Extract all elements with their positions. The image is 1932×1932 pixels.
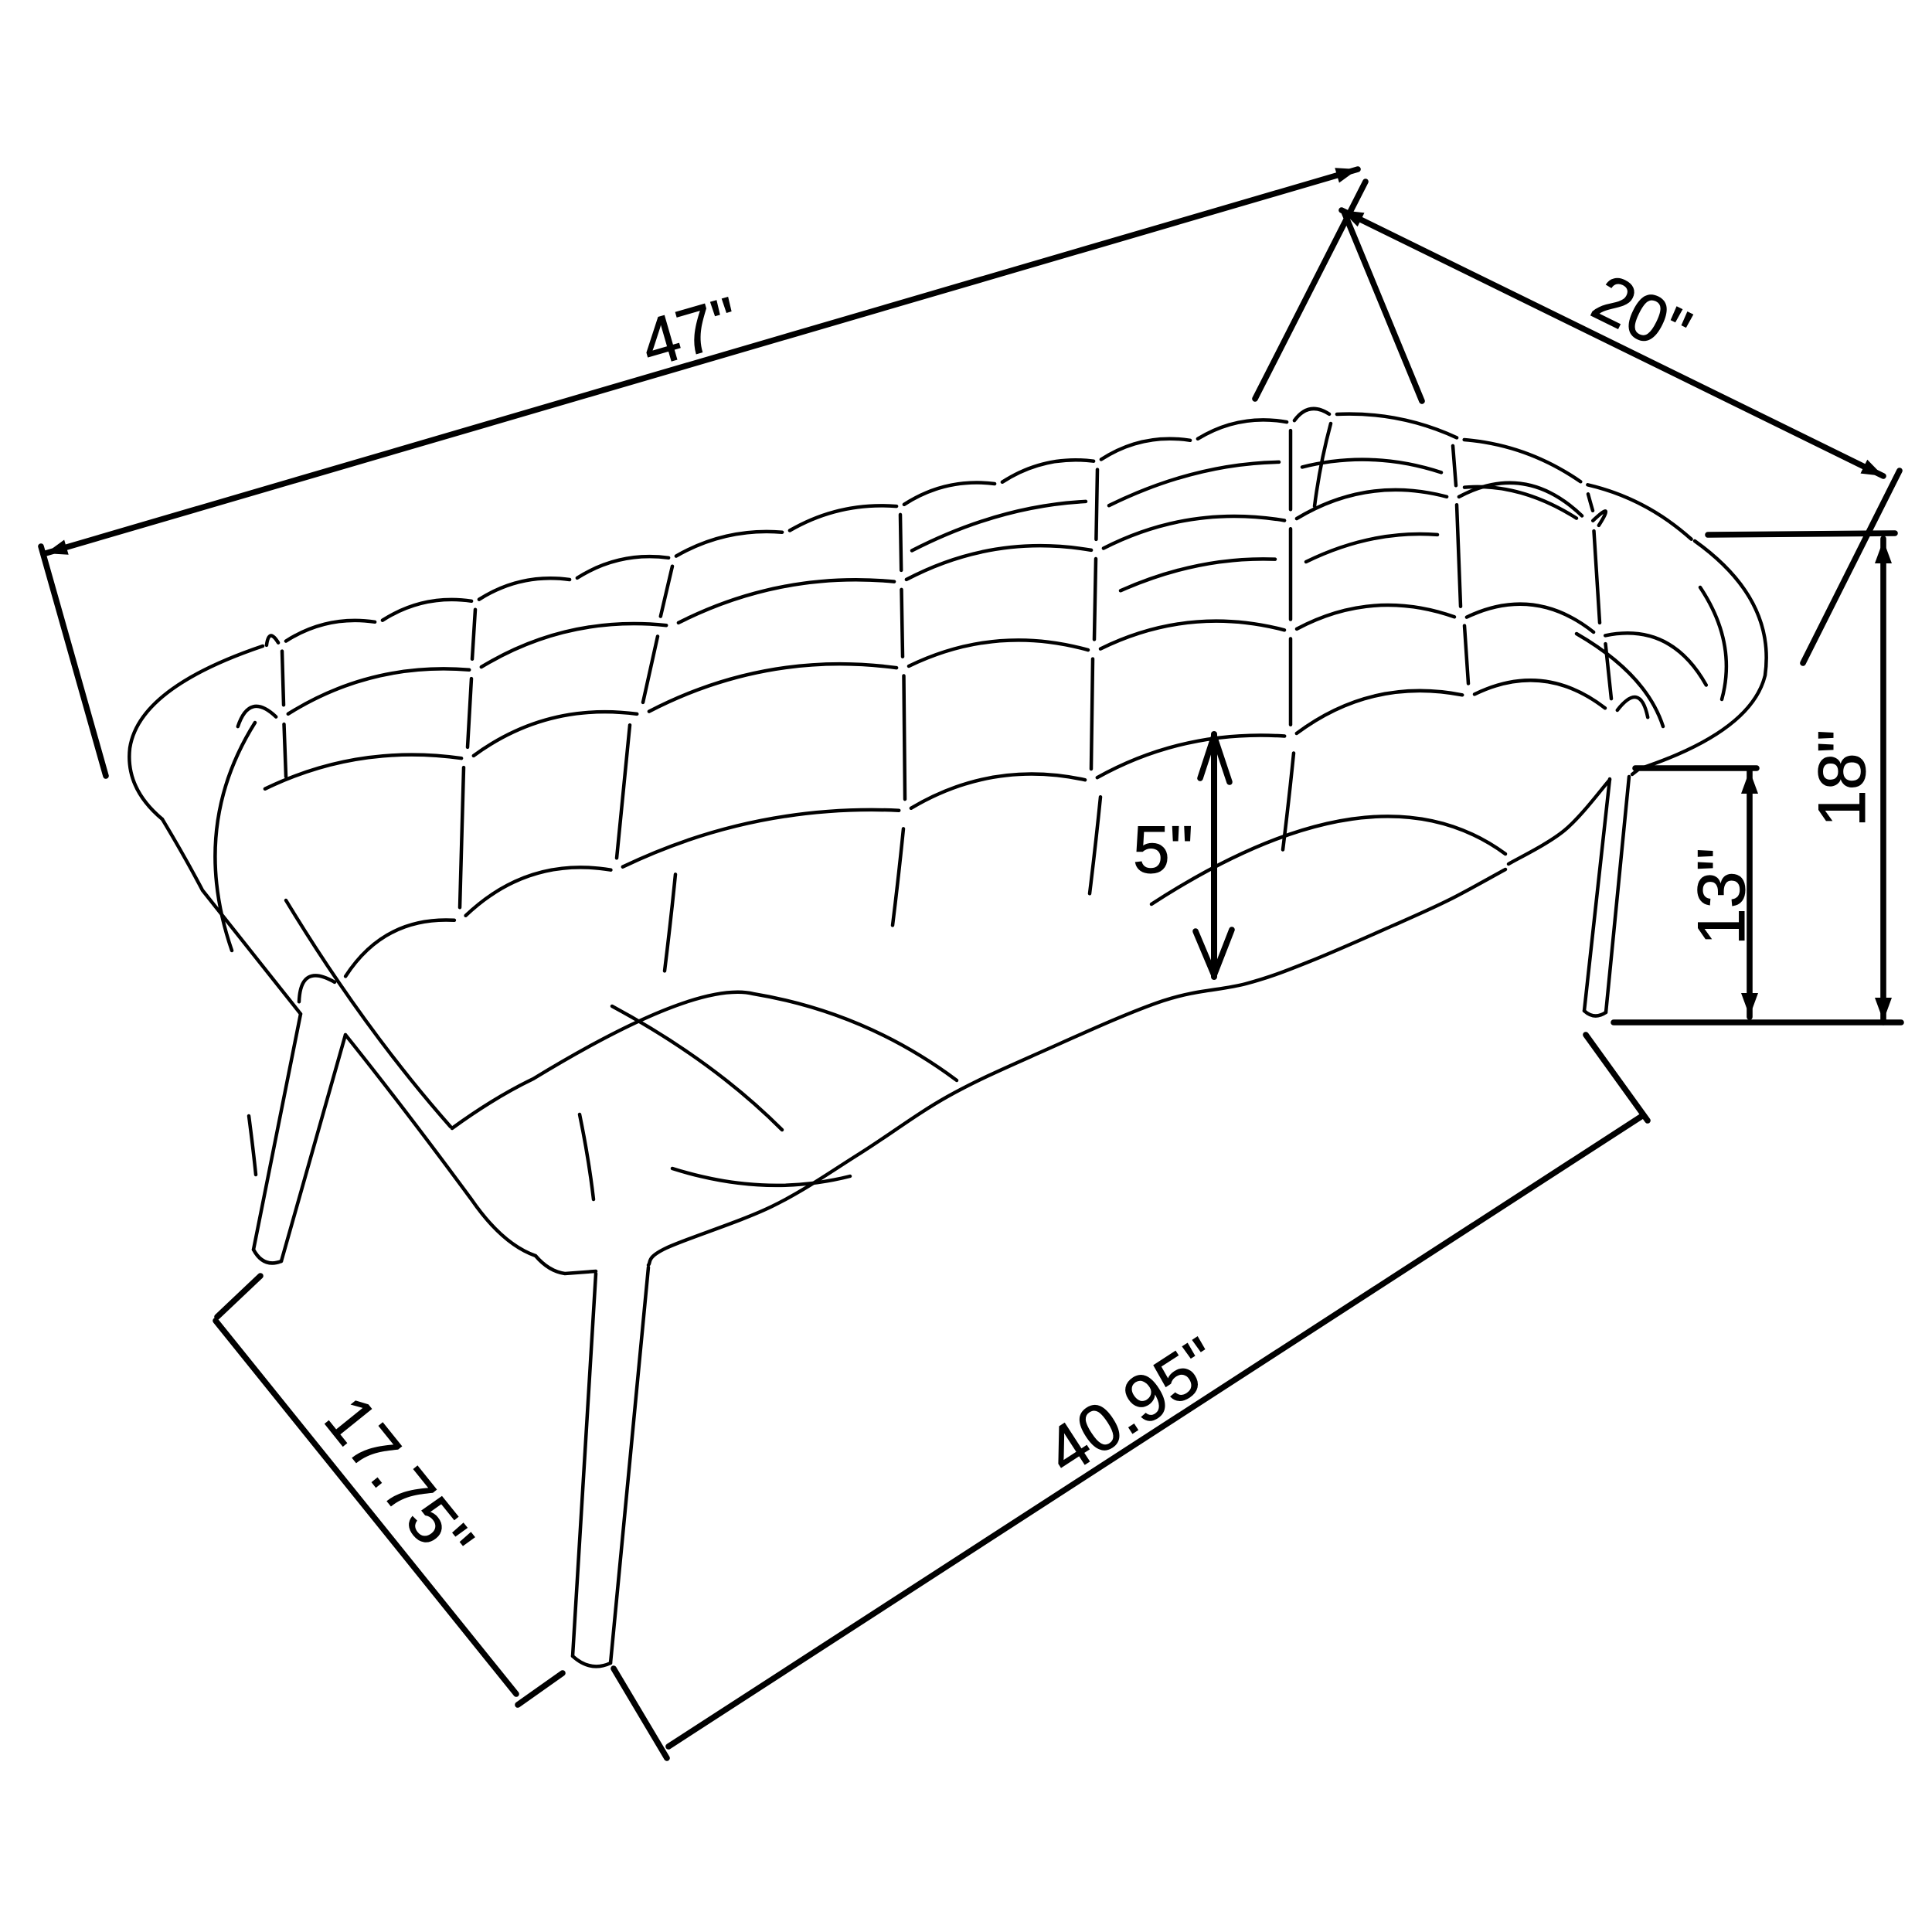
svg-text:5": 5"	[1133, 813, 1193, 887]
svg-text:47": 47"	[633, 283, 747, 381]
svg-text:20": 20"	[1581, 260, 1702, 370]
svg-text:40.95": 40.95"	[1033, 1324, 1233, 1489]
svg-text:13": 13"	[1685, 848, 1759, 945]
svg-text:18": 18"	[1805, 730, 1879, 827]
